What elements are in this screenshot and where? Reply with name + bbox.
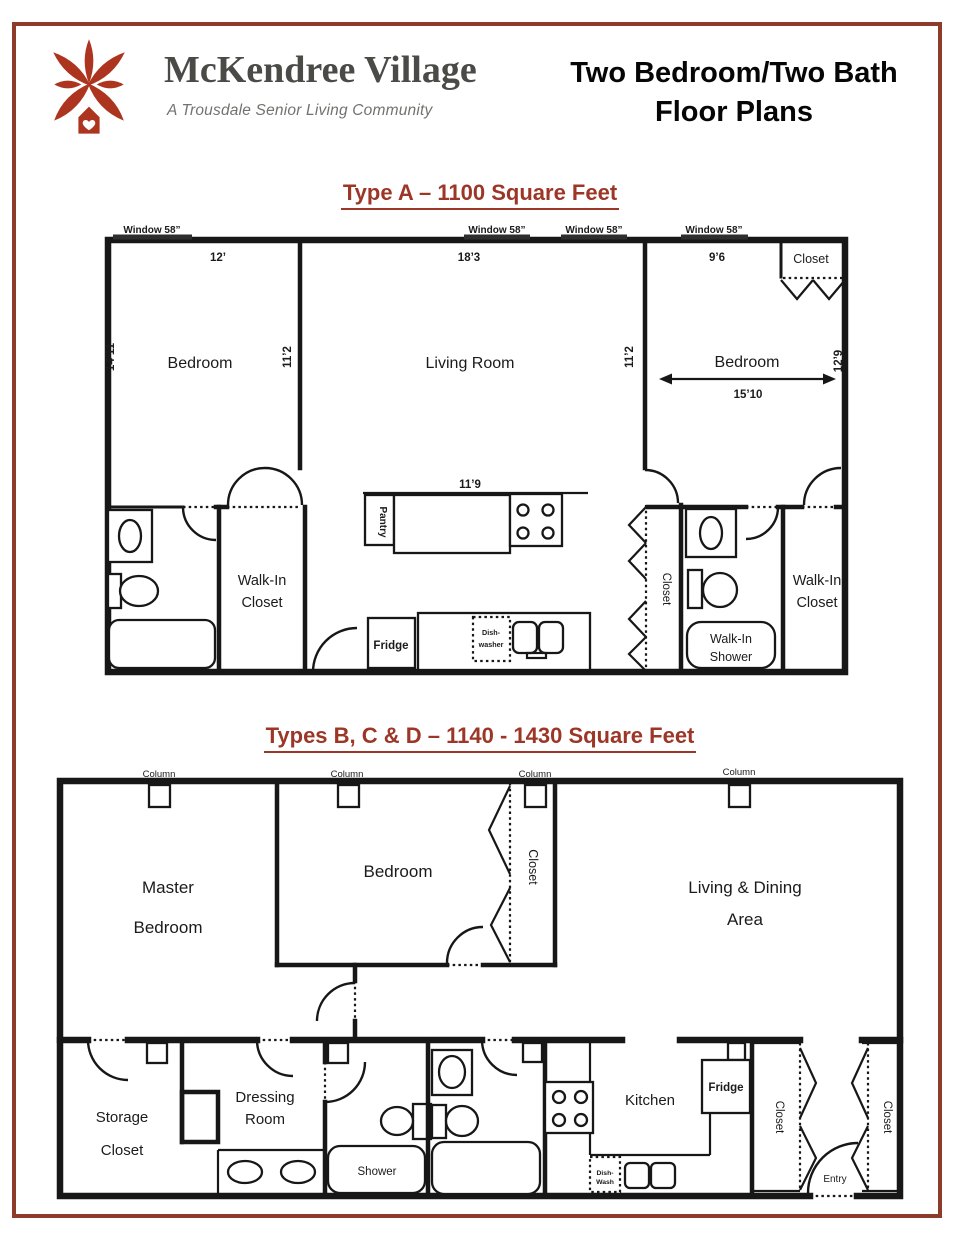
column-post <box>338 785 359 807</box>
room-bedroom-right: Bedroom <box>715 354 780 371</box>
room-bedroom-left: Bedroom <box>168 355 233 372</box>
floorplan-types-bcd: Column Column Column Column Master Bedro… <box>60 767 900 1196</box>
column-post <box>147 1043 167 1063</box>
vanity-sink <box>228 1161 262 1183</box>
svg-text:washer: washer <box>478 640 504 649</box>
document-page: McKendree Village A Trousdale Senior Liv… <box>0 0 960 1242</box>
shower-label: Shower <box>358 1166 397 1178</box>
svg-text:Room: Room <box>245 1111 285 1128</box>
window-label: Window 58” <box>685 225 742 236</box>
room-bedroom: Bedroom <box>364 862 433 881</box>
column-post <box>523 1043 542 1062</box>
column-label: Column <box>331 769 364 780</box>
svg-text:Area: Area <box>727 910 763 929</box>
toilet <box>381 1107 413 1135</box>
column-label: Column <box>143 769 176 780</box>
room-walkin-closet-right: Walk-In <box>793 573 842 589</box>
room-entry-closet-right: Closet <box>881 1101 893 1134</box>
walk-in-shower-label: Walk-In <box>710 632 752 646</box>
dishwasher-label: Dish- <box>597 1170 614 1177</box>
room-closet-middle: Closet <box>660 573 672 606</box>
column-posts-top <box>149 785 750 807</box>
entry-label: Entry <box>823 1174 846 1185</box>
svg-text:Wash: Wash <box>596 1179 614 1186</box>
column-post <box>149 785 170 807</box>
plan-b-corridor-wall <box>60 1040 900 1080</box>
dim-bed-left-depth: 14’11 <box>105 342 117 371</box>
linen-chase <box>182 1092 218 1142</box>
svg-text:Closet: Closet <box>101 1142 144 1159</box>
fridge-label: Fridge <box>373 640 408 652</box>
column-label: Column <box>723 767 756 778</box>
room-living: Living Room <box>426 355 515 372</box>
room-entry-closet-left: Closet <box>773 1101 785 1134</box>
room-dressing-room: Dressing <box>235 1089 294 1106</box>
bathtub <box>432 1142 540 1194</box>
dim-bed-right-width: 15’10 <box>734 389 763 401</box>
window-label: Window 58” <box>123 225 180 236</box>
room-storage-closet: Storage <box>96 1109 149 1126</box>
room-bedroom-closet: Closet <box>526 849 540 885</box>
window-label: Window 58” <box>468 225 525 236</box>
plan-b-guest-bath <box>428 1040 540 1196</box>
toilet <box>120 576 158 606</box>
svg-text:Closet: Closet <box>796 595 837 611</box>
sink-basin <box>625 1163 649 1188</box>
plan-a-interior-walls <box>108 243 845 672</box>
room-closet-topright: Closet <box>793 252 829 266</box>
dishwasher-label: Dish- <box>482 628 501 637</box>
sink-basin <box>513 622 537 653</box>
fridge-label: Fridge <box>708 1082 743 1094</box>
width-arrow <box>659 374 836 385</box>
window-label: Window 58” <box>565 225 622 236</box>
svg-text:Closet: Closet <box>241 595 282 611</box>
sink-basin <box>539 622 563 653</box>
plan-b-bedroom-walls <box>277 781 555 1040</box>
dim-living-width: 18’3 <box>458 252 480 264</box>
svg-text:Bedroom: Bedroom <box>134 918 203 937</box>
dim-bed-left-inner: 11’2 <box>282 346 294 368</box>
toilet-tank <box>432 1105 446 1138</box>
room-kitchen: Kitchen <box>625 1092 675 1109</box>
kitchen-island <box>394 495 510 553</box>
dim-counter: 11’9 <box>459 479 481 491</box>
plan-a-bath-left <box>108 510 215 668</box>
room-living-dining: Living & Dining <box>688 878 801 897</box>
room-master-bedroom: Master <box>142 878 194 897</box>
dim-bed-right-depth: 12’9 <box>833 350 845 372</box>
floorplan-type-a: Window 58” Window 58” Window 58” Window … <box>105 225 845 672</box>
stove <box>510 494 562 546</box>
bathtub <box>109 620 215 668</box>
plan-b-outer-wall <box>60 781 900 1196</box>
room-walkin-closet-left: Walk-In <box>238 573 287 589</box>
svg-text:Shower: Shower <box>710 650 752 664</box>
stove <box>545 1082 593 1133</box>
plan-b-kitchen <box>545 1040 750 1196</box>
column-post <box>728 1043 745 1060</box>
pantry-label: Pantry <box>377 506 388 538</box>
dim-bed-left-width: 12’ <box>210 252 226 264</box>
vanity-sink <box>281 1161 315 1183</box>
floorplans-drawing: Window 58” Window 58” Window 58” Window … <box>0 0 960 1242</box>
dim-bed-right-top: 9’6 <box>709 252 725 264</box>
toilet <box>703 573 737 607</box>
sink-basin <box>651 1163 675 1188</box>
column-post <box>328 1043 348 1063</box>
column-label: Column <box>519 769 552 780</box>
dim-living-inner: 11’2 <box>624 346 636 368</box>
column-post <box>525 785 546 807</box>
toilet-tank <box>688 570 702 608</box>
toilet <box>446 1106 478 1136</box>
column-post <box>729 785 750 807</box>
